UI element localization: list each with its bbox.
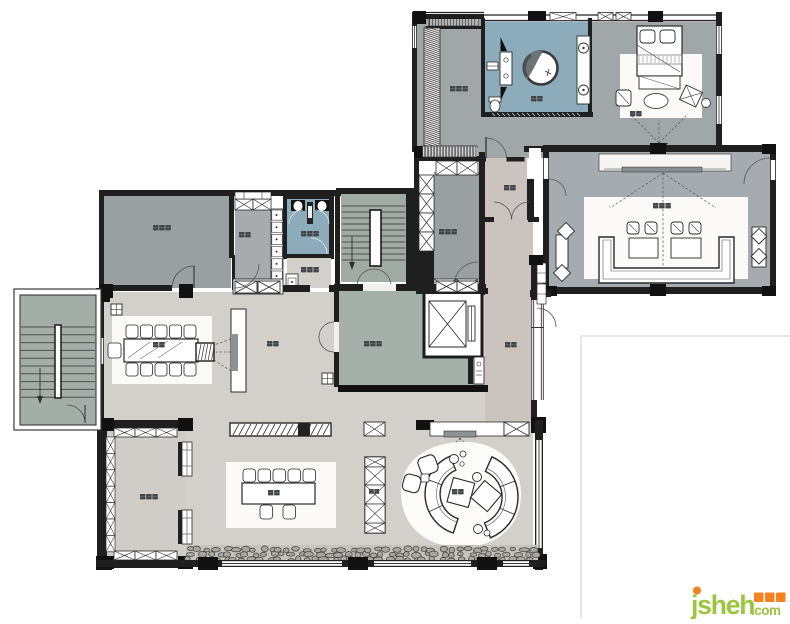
svg-text:jsheh: jsheh: [690, 590, 754, 619]
svg-text:.com: .com: [751, 603, 781, 618]
